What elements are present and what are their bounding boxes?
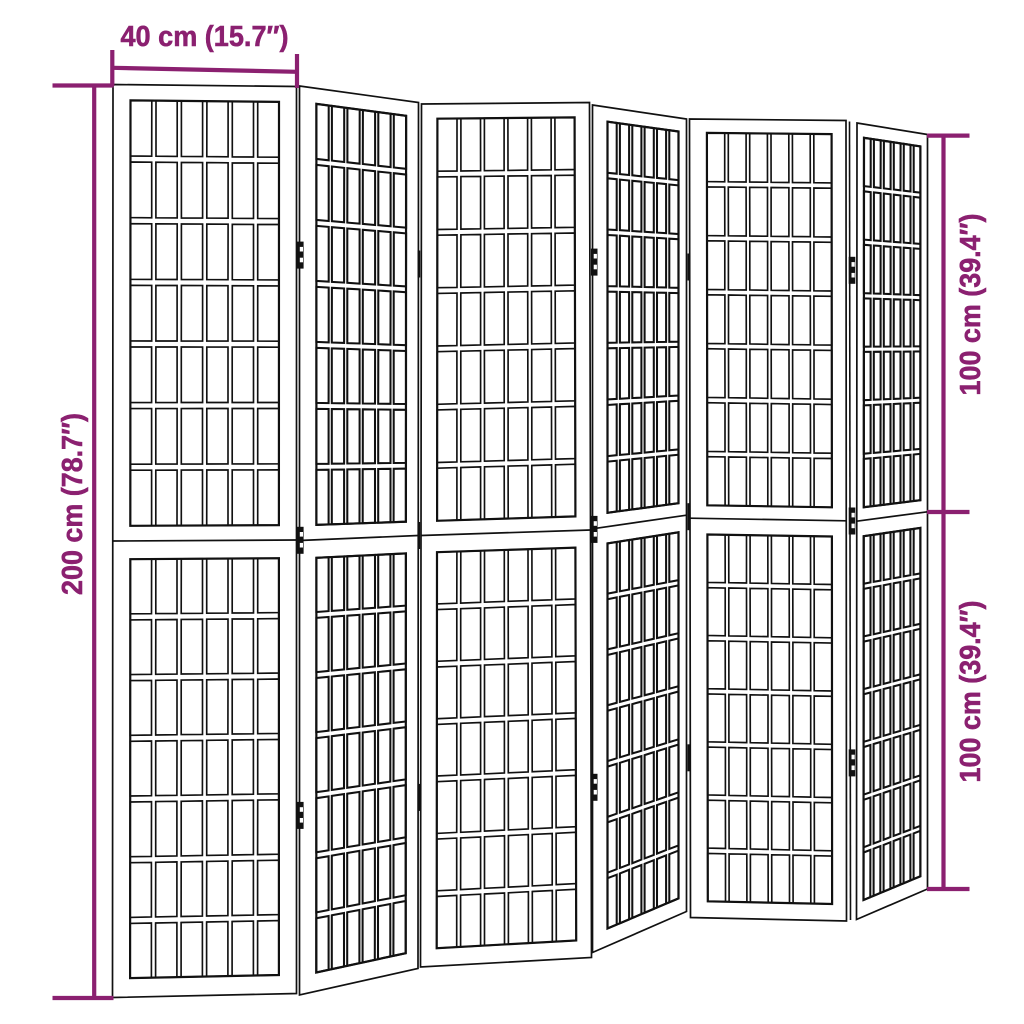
svg-text:40 cm (15.7″): 40 cm (15.7″): [121, 21, 289, 53]
svg-text:100 cm (39.4″): 100 cm (39.4″): [955, 601, 987, 783]
svg-text:200 cm (78.7″): 200 cm (78.7″): [57, 413, 89, 595]
svg-text:100 cm (39.4″): 100 cm (39.4″): [955, 214, 987, 396]
